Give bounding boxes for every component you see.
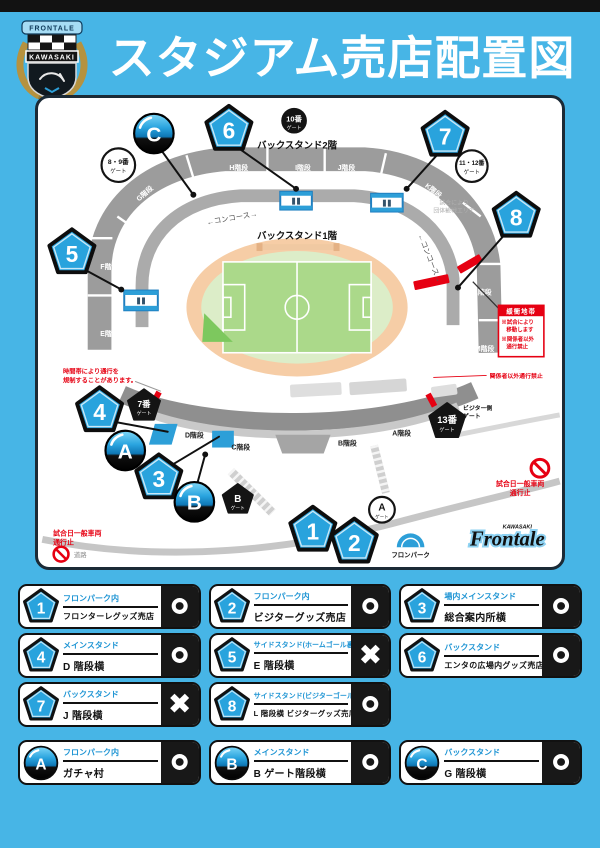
svg-text:関係者以外通行禁止: 関係者以外通行禁止	[490, 372, 543, 380]
legend-location: バックスタンド	[63, 688, 158, 704]
availability-mark-box: ○	[161, 635, 199, 676]
fronpark-logo: フロンパーク	[391, 533, 429, 559]
legend-item-4: 4 メインスタンド D 階段横 ○	[18, 633, 201, 678]
circle-mark: ○	[171, 640, 189, 670]
svg-text:ゲート: ゲート	[287, 125, 302, 132]
stair-label-e: E階段	[100, 329, 119, 338]
crest-ribbon-text: FRONTALE	[29, 26, 75, 33]
circle-mark: ○	[171, 747, 189, 777]
marker-2: 2	[332, 519, 377, 562]
svg-text:6: 6	[418, 649, 427, 666]
svg-text:B: B	[234, 494, 241, 505]
highlight-area-d-stairs	[149, 424, 178, 445]
legend-location: メインスタンド	[254, 746, 349, 762]
circle-mark: ○	[552, 591, 570, 621]
gate-10: 10番 ゲート	[281, 108, 307, 134]
svg-text:ゲート: ゲート	[464, 168, 480, 176]
legend-name: D 階段横	[63, 655, 158, 673]
svg-text:5: 5	[66, 241, 79, 267]
pentagon-badge: 3	[402, 587, 442, 627]
svg-text:11・12番: 11・12番	[459, 159, 485, 167]
svg-text:2: 2	[348, 530, 361, 556]
soccer-pitch	[223, 262, 371, 353]
no-entry-icon	[54, 547, 69, 562]
no-entry-icon	[531, 459, 549, 477]
pentagon-badge: 7	[21, 685, 61, 725]
legend-item-1: 1 フロンパーク内 フロンターレグッズ売店 ○	[18, 584, 201, 629]
cross-mark: ×	[362, 640, 380, 670]
marker-5: 5	[49, 229, 94, 272]
legend-location: フロンパーク内	[63, 746, 158, 762]
availability-mark-box: ○	[351, 684, 389, 725]
pentagon-badge: 1	[21, 587, 61, 627]
stair-label-h: H階段	[229, 163, 248, 172]
legend-name: J 階段横	[63, 704, 158, 722]
club-crest-logo: FRONTALE KAWASAKI	[12, 15, 92, 101]
availability-mark-box: ○	[542, 742, 580, 783]
svg-text:1: 1	[37, 600, 46, 617]
svg-text:ビジター側: ビジター側	[463, 404, 493, 412]
svg-text:13番: 13番	[437, 414, 457, 425]
svg-text:C: C	[417, 756, 428, 773]
marker-7: 7	[423, 112, 468, 155]
pentagon-badge: 4	[21, 636, 61, 676]
circle-mark: ○	[171, 591, 189, 621]
svg-text:Frontale: Frontale	[469, 528, 545, 550]
svg-text:7: 7	[37, 698, 46, 715]
svg-text:5: 5	[227, 649, 236, 666]
svg-text:A: A	[378, 503, 385, 514]
svg-text:8: 8	[510, 204, 523, 230]
legend-location: バックスタンド	[444, 746, 539, 762]
marker-ball-a: A	[105, 431, 144, 470]
svg-text:※関係者以外: ※関係者以外	[501, 335, 534, 343]
availability-mark-box: ○	[351, 742, 389, 783]
svg-text:7番: 7番	[137, 399, 151, 409]
mainstand-center-structure	[275, 435, 330, 454]
crest-name-text: KAWASAKI	[29, 55, 75, 62]
svg-text:10番: 10番	[286, 115, 302, 124]
svg-text:1: 1	[307, 518, 320, 544]
svg-text:C: C	[146, 123, 161, 146]
svg-text:団体観戦エリア: 団体観戦エリア	[433, 207, 474, 215]
visitor-gate-note: ビジター側 ゲート	[463, 404, 493, 420]
legend-grid: 1 フロンパーク内 フロンターレグッズ売店 ○ 2 フロンパーク内 ビジターグッ…	[18, 584, 582, 727]
no-cars-note-right: 試合日一般車両 通行止	[496, 459, 549, 497]
legend-item-c: C バックスタンド G 階段横 ○	[399, 740, 582, 785]
staff-only-note: 関係者以外通行禁止	[433, 372, 543, 380]
frontale-logo: KAWASAKI Frontale	[469, 524, 545, 550]
legend-item-2: 2 フロンパーク内 ビジターグッズ売店 ○	[209, 584, 392, 629]
circle-mark: ○	[361, 747, 379, 777]
ramps	[231, 446, 386, 513]
svg-text:3: 3	[152, 466, 165, 492]
legend-item-b: B メインスタンド B ゲート階段横 ○	[209, 740, 392, 785]
group-viewing-note: 試合により 団体観戦エリア	[433, 199, 474, 215]
svg-text:移動します: 移動します	[506, 326, 534, 334]
warmup-strip	[257, 243, 340, 251]
availability-mark-box: ○	[161, 742, 199, 783]
svg-text:4: 4	[37, 649, 46, 666]
svg-text:6: 6	[223, 117, 236, 143]
legend-name: ビジターグッズ売店	[254, 606, 349, 624]
stair-label-a: A階段	[392, 429, 411, 438]
buffer-title: 緩衝地帯	[506, 307, 536, 316]
marker-ball-b: B	[175, 482, 214, 521]
svg-text:時間帯により通行を: 時間帯により通行を	[63, 367, 119, 375]
road-label: 道路	[74, 550, 87, 559]
buffer-zone-box: 緩衝地帯 ※試合により 移動します ※関係者以外 通行禁止	[498, 305, 543, 356]
backstand-2f-label: バックスタンド2階	[257, 139, 338, 150]
stair-label-c: C階段	[231, 443, 250, 452]
legend-name: E 階段横	[254, 654, 349, 672]
svg-text:8・9番: 8・9番	[108, 157, 129, 166]
pentagon-badge: 8	[212, 685, 252, 725]
top-black-bar	[0, 0, 600, 12]
ball-badge: B	[212, 743, 252, 783]
svg-text:※試合により: ※試合により	[501, 318, 533, 326]
stair-label-i: I階段	[295, 163, 311, 172]
circle-mark: ○	[552, 747, 570, 777]
legend-location: サイドスタンド(ホームゴール裏)	[254, 639, 349, 654]
availability-mark-box: ×	[161, 684, 199, 725]
pentagon-badge: 2	[212, 587, 252, 627]
crest-checker-band	[28, 35, 76, 50]
svg-text:フロンパーク: フロンパーク	[391, 550, 429, 559]
availability-mark-box: ○	[542, 586, 580, 627]
legend-item-5: 5 サイドスタンド(ホームゴール裏) E 階段横 ×	[209, 633, 392, 678]
svg-text:ゲート: ゲート	[231, 505, 245, 512]
stadium-map: G階段 H階段 I階段 J階段 K階段 F階段 E階段 L階段 M階段 D階段 …	[38, 98, 562, 567]
marker-8: 8	[494, 193, 539, 236]
svg-text:4: 4	[93, 399, 106, 425]
svg-text:7: 7	[439, 123, 452, 149]
legend-name: L 階段横 ビジターグッズ売店	[254, 705, 349, 719]
mainstand-roof-blocks	[290, 378, 458, 398]
stair-label-j: J階段	[338, 163, 356, 172]
stadium-shop-map-page: { "header": { "title": "スタジアム売店配置図", "cr…	[0, 0, 600, 848]
cross-mark: ×	[171, 689, 189, 719]
legend-empty-cell	[399, 682, 582, 727]
svg-text:通行止: 通行止	[510, 488, 531, 497]
legend-location: サイドスタンド(ビジターゴール裏)	[254, 690, 349, 705]
legend-location: バックスタンド	[444, 641, 539, 657]
svg-text:B: B	[226, 756, 237, 773]
circle-mark: ○	[552, 640, 570, 670]
stair-label-m: M階段	[475, 344, 495, 353]
legend-item-3: 3 場内メインスタンド 総合案内所横 ○	[399, 584, 582, 629]
legend-grid-abc: A フロンパーク内 ガチャ村 ○ B メインスタンド B ゲート階段横 ○ C …	[18, 740, 582, 785]
legend-location: メインスタンド	[63, 639, 158, 655]
svg-text:通行禁止: 通行禁止	[506, 342, 528, 350]
legend-item-6: 6 バックスタンド エンタの広場内グッズ売店 ○	[399, 633, 582, 678]
ball-badge: C	[402, 743, 442, 783]
stair-label-b: B階段	[338, 439, 357, 448]
svg-text:ゲート: ゲート	[439, 426, 454, 434]
legend-location: フロンパーク内	[254, 590, 349, 606]
availability-mark-box: ○	[542, 635, 580, 676]
svg-text:B: B	[187, 492, 202, 515]
svg-text:試合日一般車両: 試合日一般車両	[496, 479, 544, 488]
gate-8-9: 8・9番 ゲート	[102, 148, 136, 182]
marker-1: 1	[290, 507, 335, 550]
svg-text:2: 2	[227, 600, 236, 617]
circle-mark: ○	[361, 689, 379, 719]
svg-text:ゲート: ゲート	[137, 410, 152, 417]
page-title: スタジアム売店配置図	[96, 22, 588, 88]
svg-text:試合日一般車両: 試合日一般車両	[53, 528, 101, 537]
pentagon-badge: 6	[402, 636, 442, 676]
availability-mark-box: ×	[351, 635, 389, 676]
availability-mark-box: ○	[351, 586, 389, 627]
stair-label-d: D階段	[185, 431, 204, 440]
svg-text:3: 3	[418, 600, 427, 617]
legend-name: 総合案内所横	[444, 606, 539, 624]
time-restriction-note: 時間帯により通行を 規制することがあります。	[63, 367, 161, 391]
stair-label-f: F階段	[100, 262, 118, 271]
availability-mark-box: ○	[161, 586, 199, 627]
svg-text:試合により: 試合により	[439, 199, 468, 207]
legend-name: B ゲート階段横	[254, 762, 349, 780]
legend-item-8: 8 サイドスタンド(ビジターゴール裏) L 階段横 ビジターグッズ売店 ○	[209, 682, 392, 727]
legend-location: フロンパーク内	[63, 592, 158, 608]
legend-location: 場内メインスタンド	[444, 590, 539, 606]
svg-text:規制することがあります。: 規制することがあります。	[63, 376, 137, 384]
gate-a: A ゲート	[369, 497, 395, 523]
marker-4: 4	[77, 387, 122, 430]
legend-name: エンタの広場内グッズ売店	[444, 657, 539, 671]
legend-name: G 階段横	[444, 762, 539, 780]
svg-text:ゲート: ゲート	[110, 167, 126, 175]
backstand-1f-label: バックスタンド1階	[257, 230, 338, 241]
stadium-map-panel: G階段 H階段 I階段 J階段 K階段 F階段 E階段 L階段 M階段 D階段 …	[35, 95, 565, 570]
concourse-label-left: ←コンコース→	[206, 209, 258, 227]
ball-badge: A	[21, 743, 61, 783]
legend-item-7: 7 バックスタンド J 階段横 ×	[18, 682, 201, 727]
svg-text:8: 8	[227, 698, 236, 715]
pentagon-badge: 5	[212, 636, 252, 676]
svg-text:A: A	[35, 756, 46, 773]
marker-6: 6	[206, 106, 251, 149]
legend-item-a: A フロンパーク内 ガチャ村 ○	[18, 740, 201, 785]
svg-text:A: A	[118, 440, 133, 463]
svg-text:ゲート: ゲート	[375, 514, 388, 521]
legend-name: フロンターレグッズ売店	[63, 608, 158, 622]
circle-mark: ○	[361, 591, 379, 621]
svg-text:通行止: 通行止	[53, 537, 74, 546]
legend-name: ガチャ村	[63, 762, 158, 780]
marker-ball-c: C	[134, 114, 173, 153]
